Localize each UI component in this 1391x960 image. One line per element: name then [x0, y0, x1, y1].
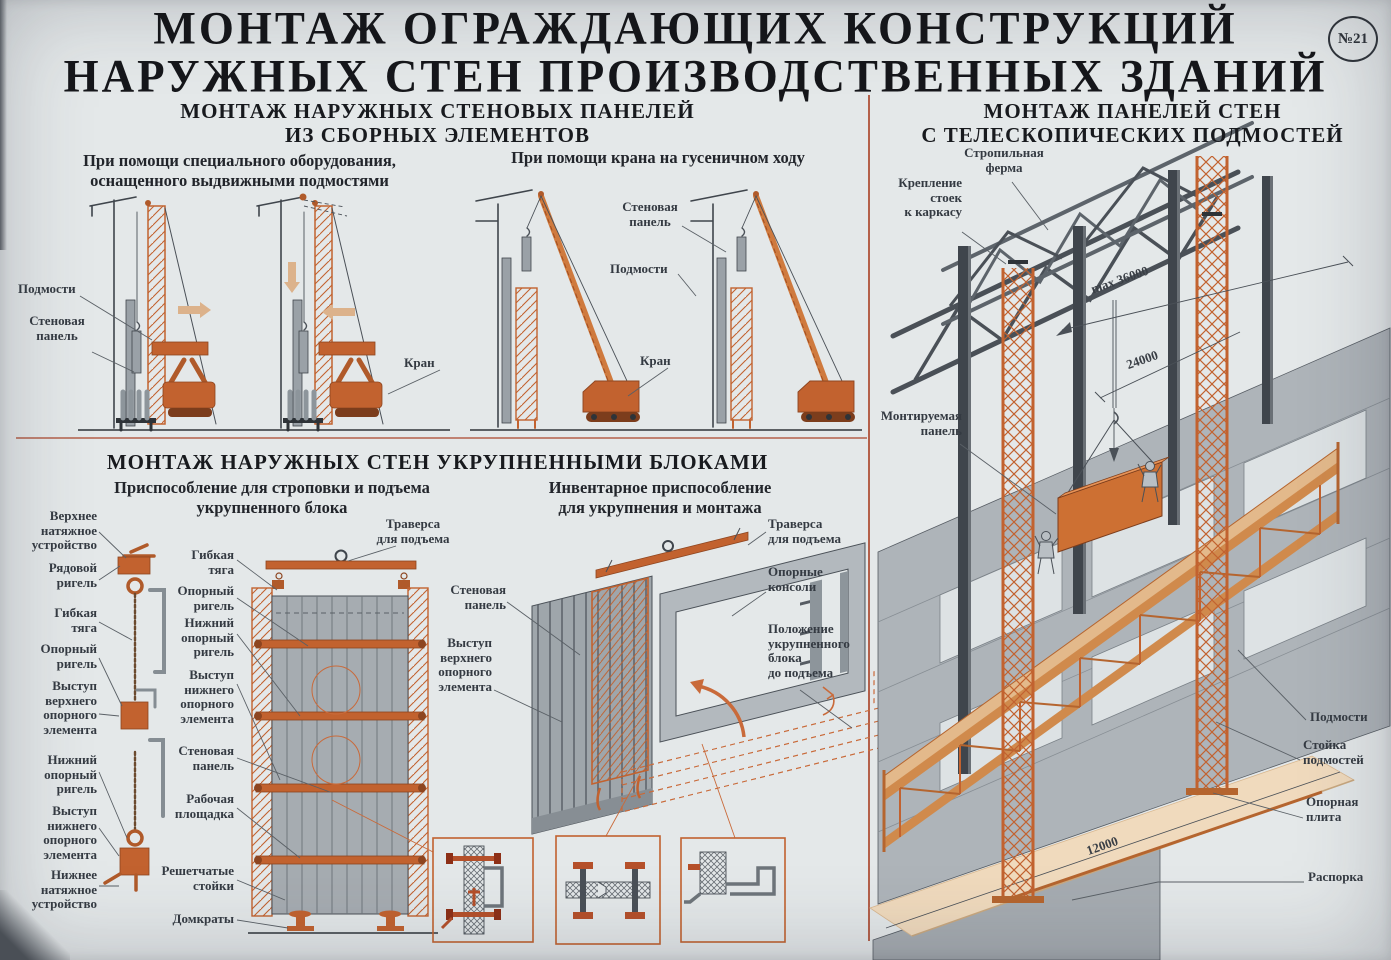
label-crane-right: Кран	[640, 354, 671, 369]
label-block-position: Положение укрупненного блока до подъема	[768, 622, 878, 680]
label-flexible-tie-1: Гибкая тяга	[5, 606, 97, 635]
label-lower-support-ledge-2: Выступ нижнего опорного элемента	[150, 668, 234, 726]
label-crane-left: Кран	[404, 356, 435, 371]
label-scaffold-right: Подмости	[610, 262, 668, 277]
diagram-telescopic-scaffolds	[870, 123, 1390, 960]
label-support-rigel-2: Опорный ригель	[150, 584, 234, 613]
diagram-special-equipment	[78, 194, 450, 431]
page-title-line2: НАРУЖНЫХ СТЕН ПРОИЗВОДСТВЕННЫХ ЗДАНИЙ	[0, 52, 1391, 100]
label-traverse-1: Траверса для подъема	[358, 517, 468, 546]
label-lattice-stands: Решетчатые стойки	[145, 864, 234, 893]
label-post-fastening: Крепление стоек к каркасу	[878, 176, 962, 220]
label-work-platform: Рабочая площадка	[150, 792, 234, 821]
label-wall-panel-left: Стеновая панель	[18, 314, 96, 343]
label-wall-panel-3: Стеновая панель	[424, 583, 506, 612]
label-roof-truss: Стропильная ферма	[952, 146, 1056, 175]
label-jacks: Домкраты	[145, 912, 234, 927]
label-support-consoles: Опорные консоли	[768, 565, 868, 594]
label-wall-panel-right: Стеновая панель	[608, 200, 692, 229]
caption-special-equipment: При помощи специального оборудования, ос…	[52, 151, 427, 191]
label-traverse-2: Траверса для подъема	[768, 517, 878, 546]
label-wall-panel-2: Стеновая панель	[150, 744, 234, 773]
section-telescopic-title: МОНТАЖ ПАНЕЛЕЙ СТЕН С ТЕЛЕСКОПИЧЕСКИХ ПО…	[880, 99, 1385, 147]
label-upper-support-ledge-2: Выступ верхнего опорного элемента	[410, 636, 492, 694]
arrow-right-icon	[178, 302, 211, 318]
label-upper-tension: Верхнее натяжное устройство	[5, 509, 97, 553]
label-mounted-panel: Монтируемая панель	[874, 409, 962, 438]
label-scaffold-left: Подмости	[18, 282, 76, 297]
label-scaffold-post: Стойка подмостей	[1303, 738, 1383, 767]
label-support-rigel-1: Опорный ригель	[5, 642, 97, 671]
label-lower-tension: Нижнее натяжное устройство	[5, 868, 97, 912]
label-lower-support-rigel-2: Нижний опорный ригель	[150, 616, 234, 660]
label-flexible-tie-2: Гибкая тяга	[150, 548, 234, 577]
diagram-block-on-stands	[248, 551, 438, 934]
page-title: МОНТАЖ ОГРАЖДАЮЩИХ КОНСТРУКЦИЙ НАРУЖНЫХ …	[0, 4, 1391, 100]
label-upper-support-ledge-1: Выступ верхнего опорного элемента	[5, 679, 97, 737]
label-scaffold-telescopic: Подмости	[1310, 710, 1368, 725]
arrow-down-icon	[284, 262, 300, 293]
caption-inventory-device: Инвентарное приспособление для укрупнени…	[490, 478, 830, 518]
section-panels-title: МОНТАЖ НАРУЖНЫХ СТЕНОВЫХ ПАНЕЛЕЙ ИЗ СБОР…	[30, 99, 845, 147]
page-title-line1: МОНТАЖ ОГРАЖДАЮЩИХ КОНСТРУКЦИЙ	[0, 4, 1391, 52]
label-lower-support-rigel-1: Нижний опорный ригель	[5, 753, 97, 797]
label-base-plate: Опорная плита	[1306, 795, 1386, 824]
caption-crawler-crane: При помощи крана на гусеничном ходу	[468, 148, 848, 168]
label-spacer: Распорка	[1308, 870, 1363, 885]
label-lower-support-ledge-1: Выступ нижнего опорного элемента	[5, 804, 97, 862]
plate-number-badge: №21	[1328, 16, 1378, 62]
label-row-rigel: Рядовой ригель	[5, 561, 97, 590]
section-blocks-title: МОНТАЖ НАРУЖНЫХ СТЕН УКРУПНЕННЫМИ БЛОКАМ…	[40, 450, 835, 474]
rotate-arrow-icon	[690, 679, 704, 694]
caption-sling-device: Приспособление для строповки и подъема у…	[62, 478, 482, 518]
